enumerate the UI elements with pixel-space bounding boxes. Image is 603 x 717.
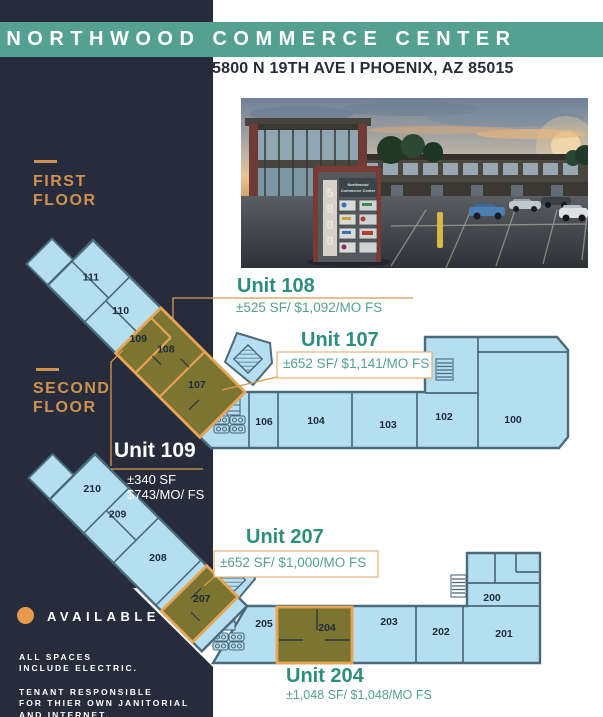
- unit-109-title: Unit 109: [114, 439, 196, 463]
- first-floor-dash: [34, 160, 57, 163]
- banner: NORTHWOOD COMMERCE CENTER: [0, 22, 603, 57]
- room-label: 205: [255, 618, 273, 630]
- room-label: 202: [432, 626, 450, 638]
- unit-108-title: Unit 108: [237, 275, 315, 298]
- room-label: 104: [307, 415, 325, 427]
- unit-204-title: Unit 204: [286, 665, 364, 688]
- stairs-icon: [451, 575, 466, 597]
- photo-monument-sign: 5800 Northwood Commerce Center: [307, 166, 391, 267]
- room-label: 102: [435, 411, 453, 423]
- unit-204-highlight: [277, 607, 352, 663]
- room-label: 204: [318, 622, 336, 634]
- sign-number: 5800: [323, 186, 337, 250]
- property-photo: 5800 Northwood Commerce Center: [241, 98, 588, 268]
- note-electric: ALL SPACES INCLUDE ELECTRIC.: [19, 652, 138, 675]
- unit-204-details: ±1,048 SF/ $1,048/MO FS: [286, 688, 432, 702]
- room-label: 100: [504, 414, 522, 426]
- unit-207-title: Unit 207: [246, 526, 324, 549]
- unit-107-details: ±652 SF/ $1,141/MO FS: [283, 356, 429, 371]
- unit-108-details: ±525 SF/ $1,092/MO FS: [236, 300, 382, 315]
- unit-107-title: Unit 107: [301, 329, 379, 352]
- room-label: 200: [483, 592, 501, 604]
- room-label: 203: [380, 616, 398, 628]
- unit-109-price: $743/MO/ FS: [127, 487, 204, 503]
- unit-109-size: ±340 SF: [127, 472, 176, 488]
- room-label: 103: [379, 419, 397, 431]
- restroom-fixtures-icon: [214, 393, 245, 433]
- photo-bollard: [437, 212, 443, 248]
- unit-107-leader-line: [222, 377, 277, 390]
- room-label: 207: [193, 593, 211, 605]
- available-dot-icon: [17, 607, 34, 624]
- page-title: NORTHWOOD COMMERCE CENTER: [6, 28, 516, 50]
- first-floor-heading: FIRST FLOOR: [33, 172, 97, 210]
- restroom-fixtures-icon: [213, 610, 244, 650]
- second-floor-dash: [36, 368, 59, 371]
- note-tenant: TENANT RESPONSIBLE FOR THIER OWN JANITOR…: [19, 687, 189, 717]
- room-label: 106: [255, 416, 273, 428]
- available-label: AVAILABLE: [47, 609, 160, 624]
- unit-207-details: ±652 SF/ $1,000/MO FS: [220, 555, 366, 570]
- stairs-landing-icon: [234, 345, 262, 373]
- stairs-icon: [436, 359, 453, 380]
- stairs-landing-icon: [219, 567, 246, 594]
- room-label: 201: [495, 628, 513, 640]
- sign-title-line2: Commerce Center: [341, 188, 376, 193]
- sign-title-line1: Northwood: [347, 182, 369, 187]
- property-address: 5800 N 19TH AVE I PHOENIX, AZ 85015: [212, 60, 504, 78]
- flyer-page: NORTHWOOD COMMERCE CENTER 5800 N 19TH AV…: [0, 0, 603, 717]
- second-floor-heading: SECOND FLOOR: [33, 379, 110, 417]
